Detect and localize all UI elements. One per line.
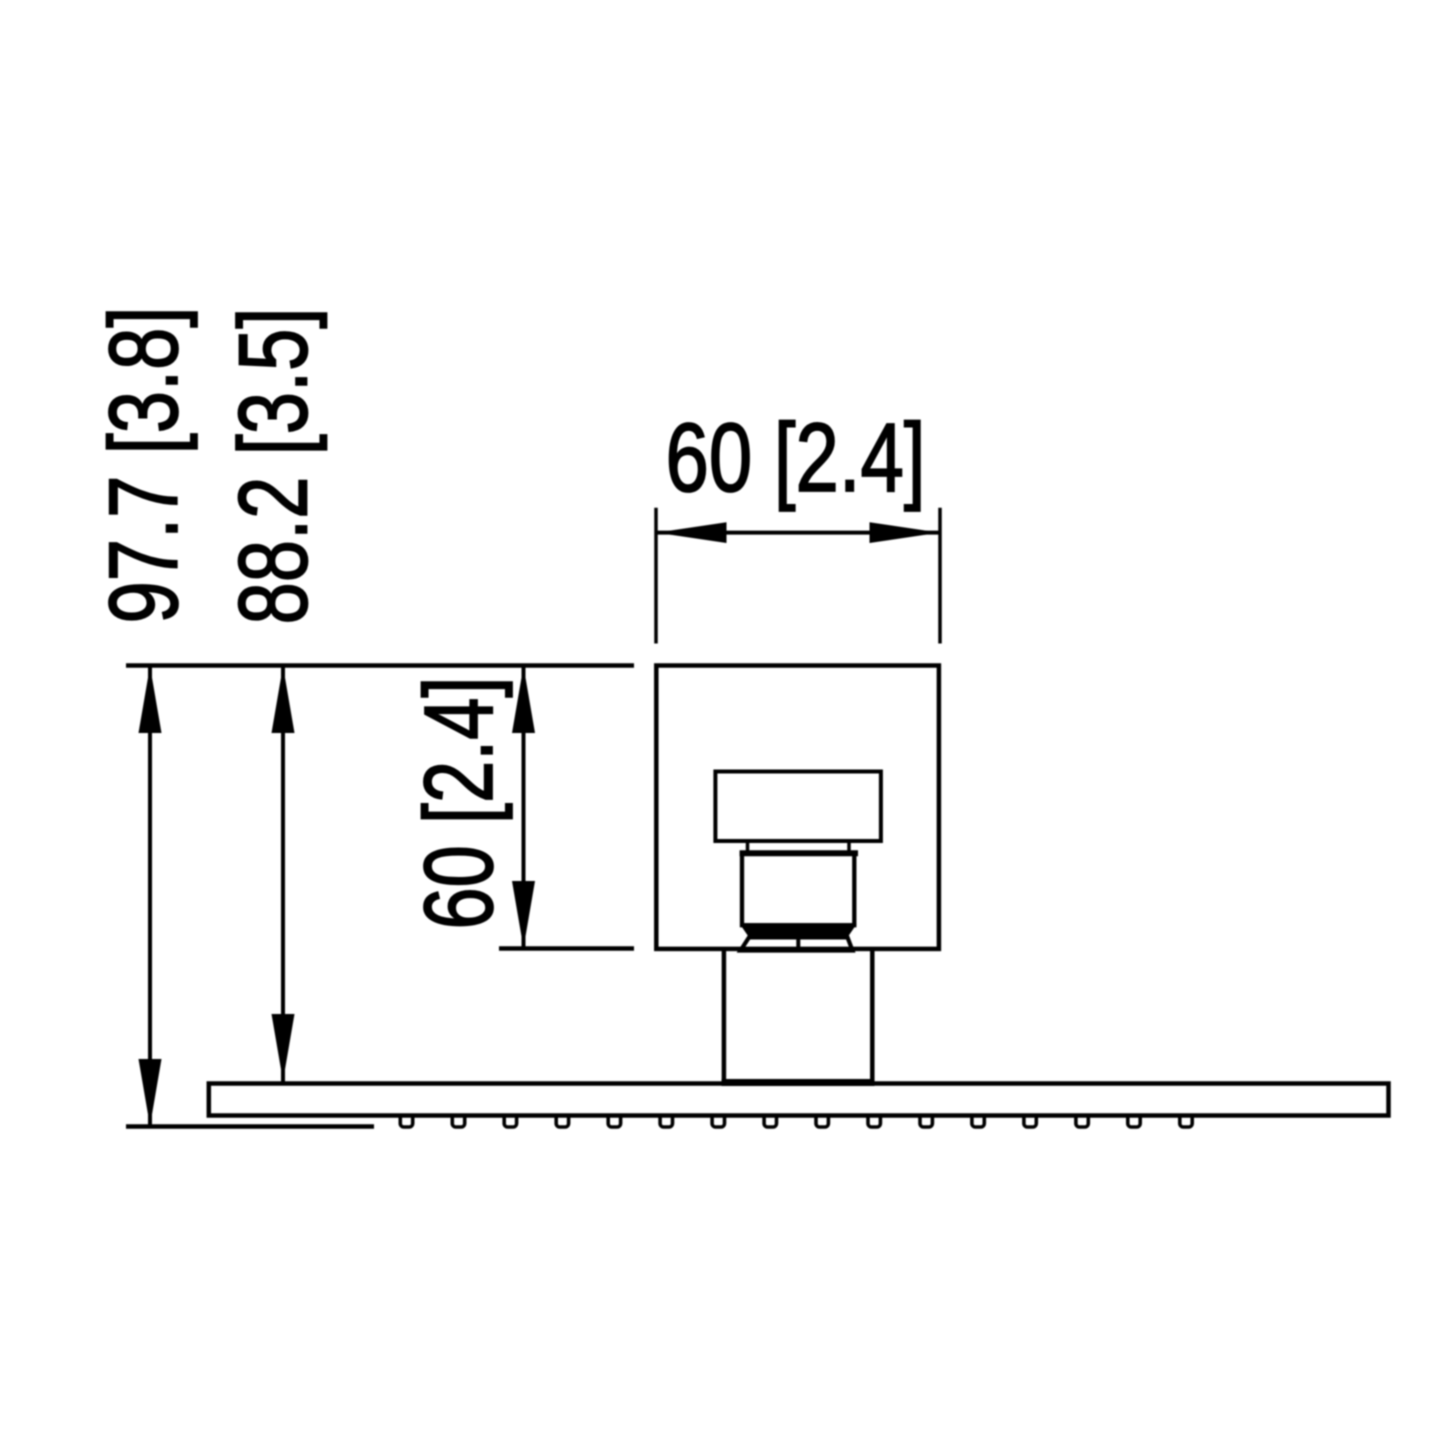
svg-text:60 [2.4]: 60 [2.4] (666, 403, 926, 512)
svg-text:60 [2.4]: 60 [2.4] (404, 677, 513, 930)
svg-text:88.2 [3.5]: 88.2 [3.5] (219, 308, 328, 625)
svg-text:97.7 [3.8]: 97.7 [3.8] (89, 307, 198, 624)
